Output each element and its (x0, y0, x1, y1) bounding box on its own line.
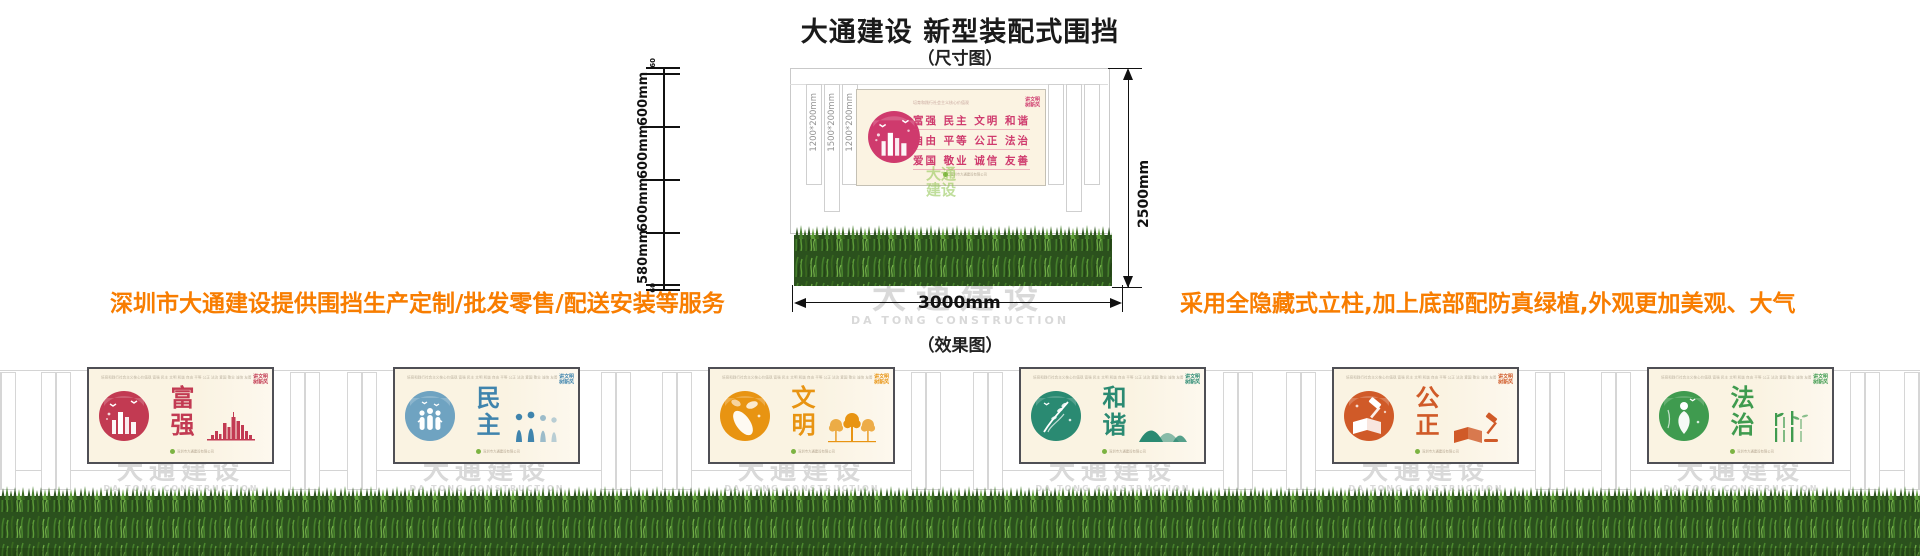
circle-art-people (404, 390, 456, 442)
hedge-bottom (0, 486, 1920, 556)
dim-tick (646, 126, 680, 128)
panel-header-text: 培育和践行社会主义核心价值观 富强 民主 文明 和谐 自由 平等 公正 法治 爱… (101, 375, 252, 380)
panel-footer: 深圳市大通建设有限公司 (1415, 446, 1510, 457)
panel-footer: 深圳市大通建设有限公司 (791, 446, 886, 457)
motif-city-bars (205, 409, 257, 445)
dim-tick (646, 73, 680, 75)
panel-word: 公正 (1412, 385, 1438, 439)
post-size-label: 1500*200mm (827, 93, 837, 152)
post-slot (601, 372, 631, 490)
dim-label-2500: 2500mm (1136, 138, 1152, 228)
post-slot (1904, 372, 1920, 490)
circle-art-gavel-book (1343, 390, 1395, 442)
effect-panel-fuqiang: 培育和践行社会主义核心价值观 富强 民主 文明 和谐 自由 平等 公正 法治 爱… (87, 367, 274, 464)
panel-badge: 讲文明树新风 (874, 374, 889, 385)
panel-header-text: 培育和践行社会主义核心价值观 富强 民主 文明 和谐 自由 平等 公正 法治 爱… (1033, 375, 1184, 380)
dim-tick (646, 232, 680, 234)
panel-header-text: 培育和践行社会主义核心价值观 富强 民主 文明 和谐 自由 平等 公正 法治 爱… (1346, 375, 1497, 380)
dim-label-580: 580mm (636, 233, 651, 284)
panel-word: 和谐 (1099, 385, 1125, 439)
logo-dot-icon (476, 449, 481, 454)
dim-label-600-1: 600mm (636, 74, 651, 126)
panel-header-text: 培育和践行社会主义核心价值观 富强 民主 文明 和谐 自由 平等 公正 法治 爱… (1661, 375, 1812, 380)
post-size-label: 1200*200mm (809, 93, 819, 152)
hedge-dimension (794, 225, 1112, 286)
arrow-right-icon (1110, 298, 1122, 308)
panel-badge: 讲文明树新风 (1813, 374, 1828, 385)
wall-top-line (0, 370, 1920, 371)
post-slot (290, 372, 320, 490)
bottom-dim-ext-right (1122, 285, 1123, 312)
post-left-2: 1500*200mm (824, 84, 840, 212)
panel-badge: 讲文明树新风 (1498, 374, 1513, 385)
panel-footer: 深圳市大通建设有限公司 (170, 446, 265, 457)
post-size-label: 1200*200mm (845, 93, 855, 152)
effect-panel-minzhu: 培育和践行社会主义核心价值观 富强 民主 文明 和谐 自由 平等 公正 法治 爱… (393, 367, 580, 464)
post-slot (1601, 372, 1631, 490)
panel-footer: 深圳市大通建设有限公司 (476, 446, 571, 457)
post-slot (41, 372, 71, 490)
dim-label-3000: 3000mm (918, 293, 1001, 313)
post-slot (1850, 372, 1880, 490)
post-slot (1223, 372, 1253, 490)
effect-panel-hexie: 培育和践行社会主义核心价值观 富强 民主 文明 和谐 自由 平等 公正 法治 爱… (1019, 367, 1206, 464)
motif-people (511, 409, 563, 445)
motif-bamboo (1765, 409, 1817, 445)
circle-art-city (98, 390, 150, 442)
panel-badge: 讲文明树新风 (559, 374, 574, 385)
panel-footer: 深圳市大通建设有限公司 (1730, 446, 1825, 457)
dim-tick (646, 179, 680, 181)
logo-dot-icon (1415, 449, 1420, 454)
billboard-header-text: 培育和践行社会主义核心价值观 (913, 100, 969, 106)
panel-badge: 讲文明树新风 (1185, 374, 1200, 385)
billboard-badge: 讲文明 树新风 (1025, 97, 1040, 108)
dim-label-60-bottom: 60 (649, 283, 657, 293)
logo-dot-icon (1102, 449, 1107, 454)
panel-badge: 讲文明树新风 (253, 374, 268, 385)
panel-footer: 深圳市大通建设有限公司 (1102, 446, 1197, 457)
arrow-up-icon (1123, 68, 1133, 80)
post-left-1: 1200*200mm (806, 84, 822, 185)
feature-note: 采用全隐藏式立柱,加上底部配防真绿植,外观更加美观、大气 (1180, 284, 1795, 318)
panel-word: 文明 (788, 385, 814, 439)
logo-dot-icon (791, 449, 796, 454)
core-values-lines: 富强 民主 文明 和谐 自由 平等 公正 法治 爱国 敬业 诚信 友善 (913, 113, 1030, 173)
panel-word: 民主 (473, 385, 499, 439)
post-right-3 (1084, 84, 1100, 185)
circle-art-hand (719, 390, 771, 442)
post-slot (347, 372, 377, 490)
panel-word: 法治 (1727, 385, 1753, 439)
effect-panel-fazhi: 培育和践行社会主义核心价值观 富强 民主 文明 和谐 自由 平等 公正 法治 爱… (1647, 367, 1834, 464)
panel-word: 富强 (167, 385, 193, 439)
billboard-footer: 深圳市大通建设有限公司 (943, 169, 1038, 180)
post-slot (1535, 372, 1565, 490)
post-right-2 (1066, 84, 1082, 212)
poster: 大通建设 新型装配式围挡 （尺寸图） 1200*200mm 1500*200mm… (0, 0, 1920, 560)
green-logo-watermark: 大通 建设 (926, 166, 956, 198)
panel-header-text: 培育和践行社会主义核心价值观 富强 民主 文明 和谐 自由 平等 公正 法治 爱… (407, 375, 558, 380)
right-dim-ext-bottom (1112, 287, 1142, 288)
dim-label-600-2: 600mm (636, 127, 651, 179)
panel-header-text: 培育和践行社会主义核心价值观 富强 民主 文明 和谐 自由 平等 公正 法治 爱… (722, 375, 873, 380)
motif-mountains (1137, 409, 1189, 445)
post-slot (911, 372, 941, 490)
right-dim-line (1128, 70, 1129, 288)
service-note: 深圳市大通建设提供围挡生产定制/批发零售/配送安装等服务 (110, 284, 725, 318)
right-dim-ext-top (1108, 68, 1142, 69)
circle-art-figure (1658, 390, 1710, 442)
dim-label-60-top: 60 (649, 58, 657, 68)
post-slot (1286, 372, 1316, 490)
post-right-1 (1048, 84, 1064, 185)
effect-diagram-label: （效果图） (0, 331, 1920, 356)
effect-panel-gongzheng: 培育和践行社会主义核心价值观 富强 民主 文明 和谐 自由 平等 公正 法治 爱… (1332, 367, 1519, 464)
motif-book-gavel (1450, 409, 1502, 445)
post-slot (973, 372, 1003, 490)
dimension-diagram-label: （尺寸图） (0, 44, 1920, 69)
motif-trees (826, 409, 878, 445)
post-slot (0, 372, 16, 490)
effect-panel-wenming: 培育和践行社会主义核心价值观 富强 民主 文明 和谐 自由 平等 公正 法治 爱… (708, 367, 895, 464)
post-slot (662, 372, 692, 490)
logo-dot-icon (1730, 449, 1735, 454)
logo-dot-icon (170, 449, 175, 454)
circle-art-branch (1030, 390, 1082, 442)
bottom-dim-ext-left (792, 285, 793, 312)
arrow-left-icon (794, 298, 806, 308)
dim-label-600-3: 600mm (636, 180, 651, 232)
